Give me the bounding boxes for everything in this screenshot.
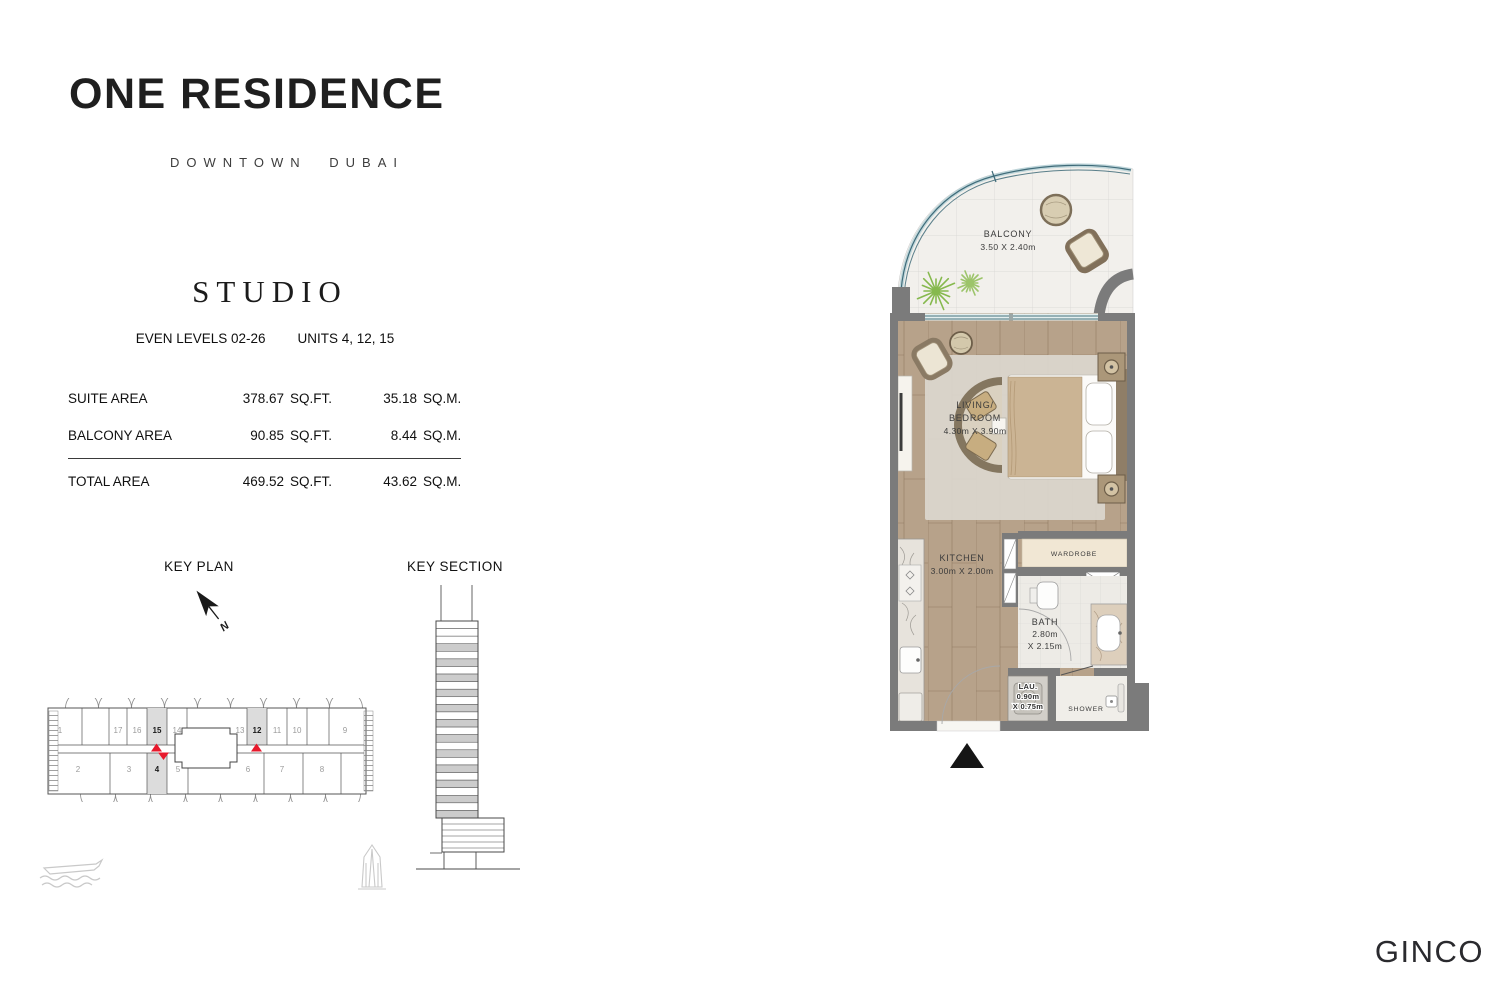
shower-label: SHOWER (1068, 706, 1103, 713)
area-sqft-value: 90.85 (186, 428, 284, 443)
keyplan-unit-number: 8 (320, 765, 325, 774)
area-sqft-unit: SQ.FT. (284, 391, 334, 406)
plant-icon (958, 271, 982, 295)
unit-floor-plan: BALCONY 3.50 X 2.40m LIVING/ BEDROOM 4.3… (880, 163, 1165, 795)
bath-vanity (1091, 604, 1127, 665)
keyplan-unit-number: 2 (76, 765, 81, 774)
shower-wall (1094, 668, 1127, 676)
unit-numbers: UNITS 4, 12, 15 (298, 331, 395, 346)
living-side-table (950, 332, 972, 354)
laundry-wall (1008, 668, 1060, 676)
area-sqm-unit: SQ.M. (417, 474, 461, 489)
kitchen-dims: 3.00m X 2.00m (931, 566, 994, 576)
area-sqm-unit: SQ.M. (417, 391, 461, 406)
keyplan-unit-number: 3 (127, 765, 132, 774)
area-sqm-value: 43.62 (334, 474, 417, 489)
unit-levels-row: EVEN LEVELS 02-26 UNITS 4, 12, 15 (100, 331, 430, 346)
keyplan-unit-number: 1 (58, 726, 63, 735)
fridge (899, 693, 922, 721)
keyplan-unit-number: 7 (280, 765, 285, 774)
shower (1056, 676, 1127, 721)
balcony-round-table (1041, 195, 1071, 225)
wardrobe-wall (1018, 531, 1127, 539)
laundry-label: LAU. (1019, 682, 1038, 691)
keyplan-top-balconies (66, 698, 363, 708)
keyplan-core (175, 728, 237, 768)
tower-podium (442, 818, 504, 852)
living-label: BEDROOM (949, 413, 1001, 423)
nightstand (1098, 353, 1125, 381)
area-sqft-value: 469.52 (186, 474, 284, 489)
keyplan-unit-number: 5 (176, 765, 181, 774)
curved-sofa (958, 381, 1006, 469)
boat-landmark-icon (36, 852, 116, 892)
area-label: SUITE AREA (68, 391, 186, 406)
keyplan-unit-number: 11 (273, 726, 282, 735)
bed (1008, 369, 1127, 481)
building-landmark-icon (352, 843, 392, 895)
kitchen-label: KITCHEN (939, 553, 984, 563)
area-label: BALCONY AREA (68, 428, 186, 443)
tv-console (898, 376, 912, 471)
keyplan-right-hatch (364, 711, 373, 791)
keyplan-left-hatch (49, 711, 58, 791)
keyplan-unit-number-highlighted: 4 (155, 765, 160, 774)
keyplan-unit-number: 17 (114, 726, 123, 735)
balcony-label: BALCONY (984, 229, 1033, 239)
brand-logo: ONE RESIDENCE (69, 70, 445, 119)
keyplan-unit-number-highlighted: 12 (253, 726, 262, 735)
keyplan-unit-number: 6 (246, 765, 251, 774)
laundry-dims: 0.90m (1017, 692, 1040, 701)
key-plan-title: KEY PLAN (124, 559, 274, 574)
keyplan-bottom-balconies (81, 794, 361, 802)
balcony-dims: 3.50 X 2.40m (980, 242, 1035, 252)
area-sqft-unit: SQ.FT. (284, 428, 334, 443)
brand-location: DOWNTOWN DUBAI (170, 155, 404, 170)
north-arrow-icon: N (182, 582, 242, 642)
area-table: SUITE AREA 378.67 SQ.FT. 35.18 SQ.M. BAL… (68, 384, 461, 504)
keyplan-unit-number: 16 (133, 726, 142, 735)
keyplan-unit-number: 10 (293, 726, 302, 735)
area-sqft-unit: SQ.FT. (284, 474, 334, 489)
area-sqm-value: 35.18 (334, 391, 417, 406)
wardrobe-label: WARDROBE (1051, 551, 1097, 558)
keyplan-unit-number: 13 (236, 726, 245, 735)
area-sqft-value: 378.67 (186, 391, 284, 406)
laundry-dims: X 0.75m (1013, 702, 1043, 711)
keyplan-unit-number-highlighted: 15 (153, 726, 162, 735)
floorplan-brochure-page: ONE RESIDENCE DOWNTOWN DUBAI STUDIO EVEN… (0, 0, 1498, 990)
unit-type-title: STUDIO (120, 274, 420, 310)
area-row-total: TOTAL AREA 469.52 SQ.FT. 43.62 SQ.M. (68, 458, 461, 495)
kitchen-counter (896, 539, 924, 721)
keyplan-unit-number: 9 (343, 726, 348, 735)
tower-floor-bands (436, 621, 478, 818)
balcony-wall (892, 287, 910, 315)
north-label: N (218, 619, 232, 634)
area-sqm-unit: SQ.M. (417, 428, 461, 443)
living-dims: 4.30m X 3.90m (944, 426, 1007, 436)
shower-divider-wall (1048, 676, 1056, 721)
unit-levels: EVEN LEVELS 02-26 (136, 331, 266, 346)
key-section-title: KEY SECTION (380, 559, 530, 574)
entrance-marker-icon (950, 743, 984, 768)
area-label: TOTAL AREA (68, 474, 186, 489)
living-label: LIVING/ (956, 400, 994, 410)
area-row-balcony: BALCONY AREA 90.85 SQ.FT. 8.44 SQ.M. (68, 421, 461, 449)
area-row-suite: SUITE AREA 378.67 SQ.FT. 35.18 SQ.M. (68, 384, 461, 412)
developer-logo: GINCO (1375, 934, 1484, 970)
bath-wall (1017, 567, 1079, 576)
bath-dims: X 2.15m (1028, 641, 1062, 651)
exterior-wall-jut (1135, 683, 1149, 731)
bath-dims: 2.80m (1032, 629, 1058, 639)
area-sqm-value: 8.44 (334, 428, 417, 443)
bath-label: BATH (1032, 617, 1059, 627)
nightstand (1098, 475, 1125, 503)
hall-mirror-wall (1002, 533, 1018, 607)
keyplan-unit-number: 14 (173, 726, 182, 735)
key-section-diagram (408, 583, 528, 883)
key-plan-diagram: 1 17 16 15 14 13 12 11 10 9 2 3 4 5 6 7 … (46, 698, 376, 802)
balcony-sliding-door (925, 314, 1098, 321)
